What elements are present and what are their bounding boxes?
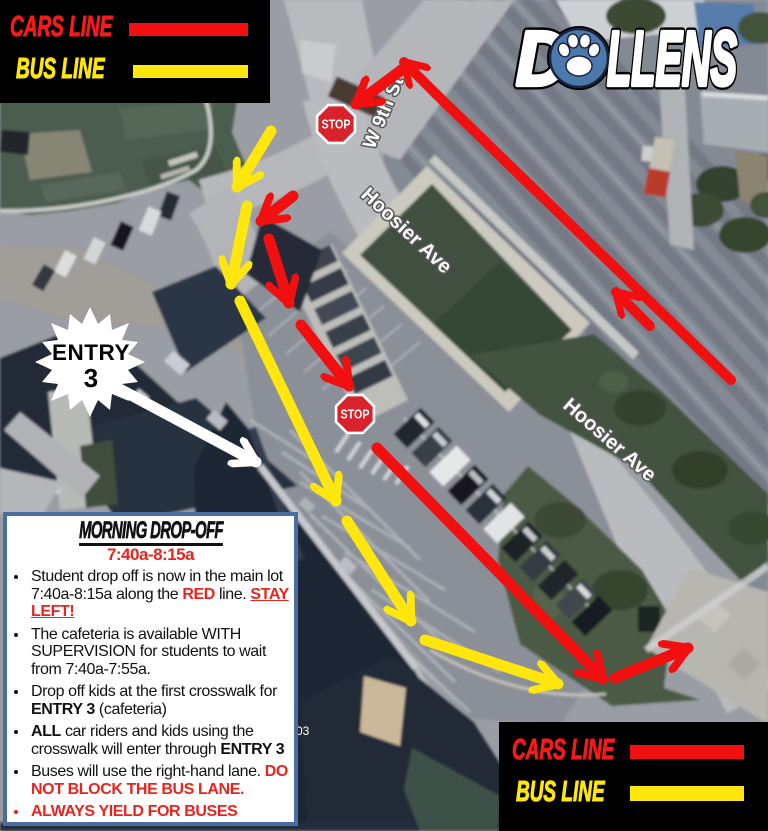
svg-text:03: 03 (296, 724, 310, 738)
svg-text:STOP: STOP (322, 117, 351, 132)
svg-text:ENTRY: ENTRY (52, 340, 130, 365)
svg-text:STOP: STOP (341, 407, 370, 422)
svg-text:LLENS: LLENS (607, 16, 737, 102)
svg-text:3: 3 (84, 363, 98, 393)
